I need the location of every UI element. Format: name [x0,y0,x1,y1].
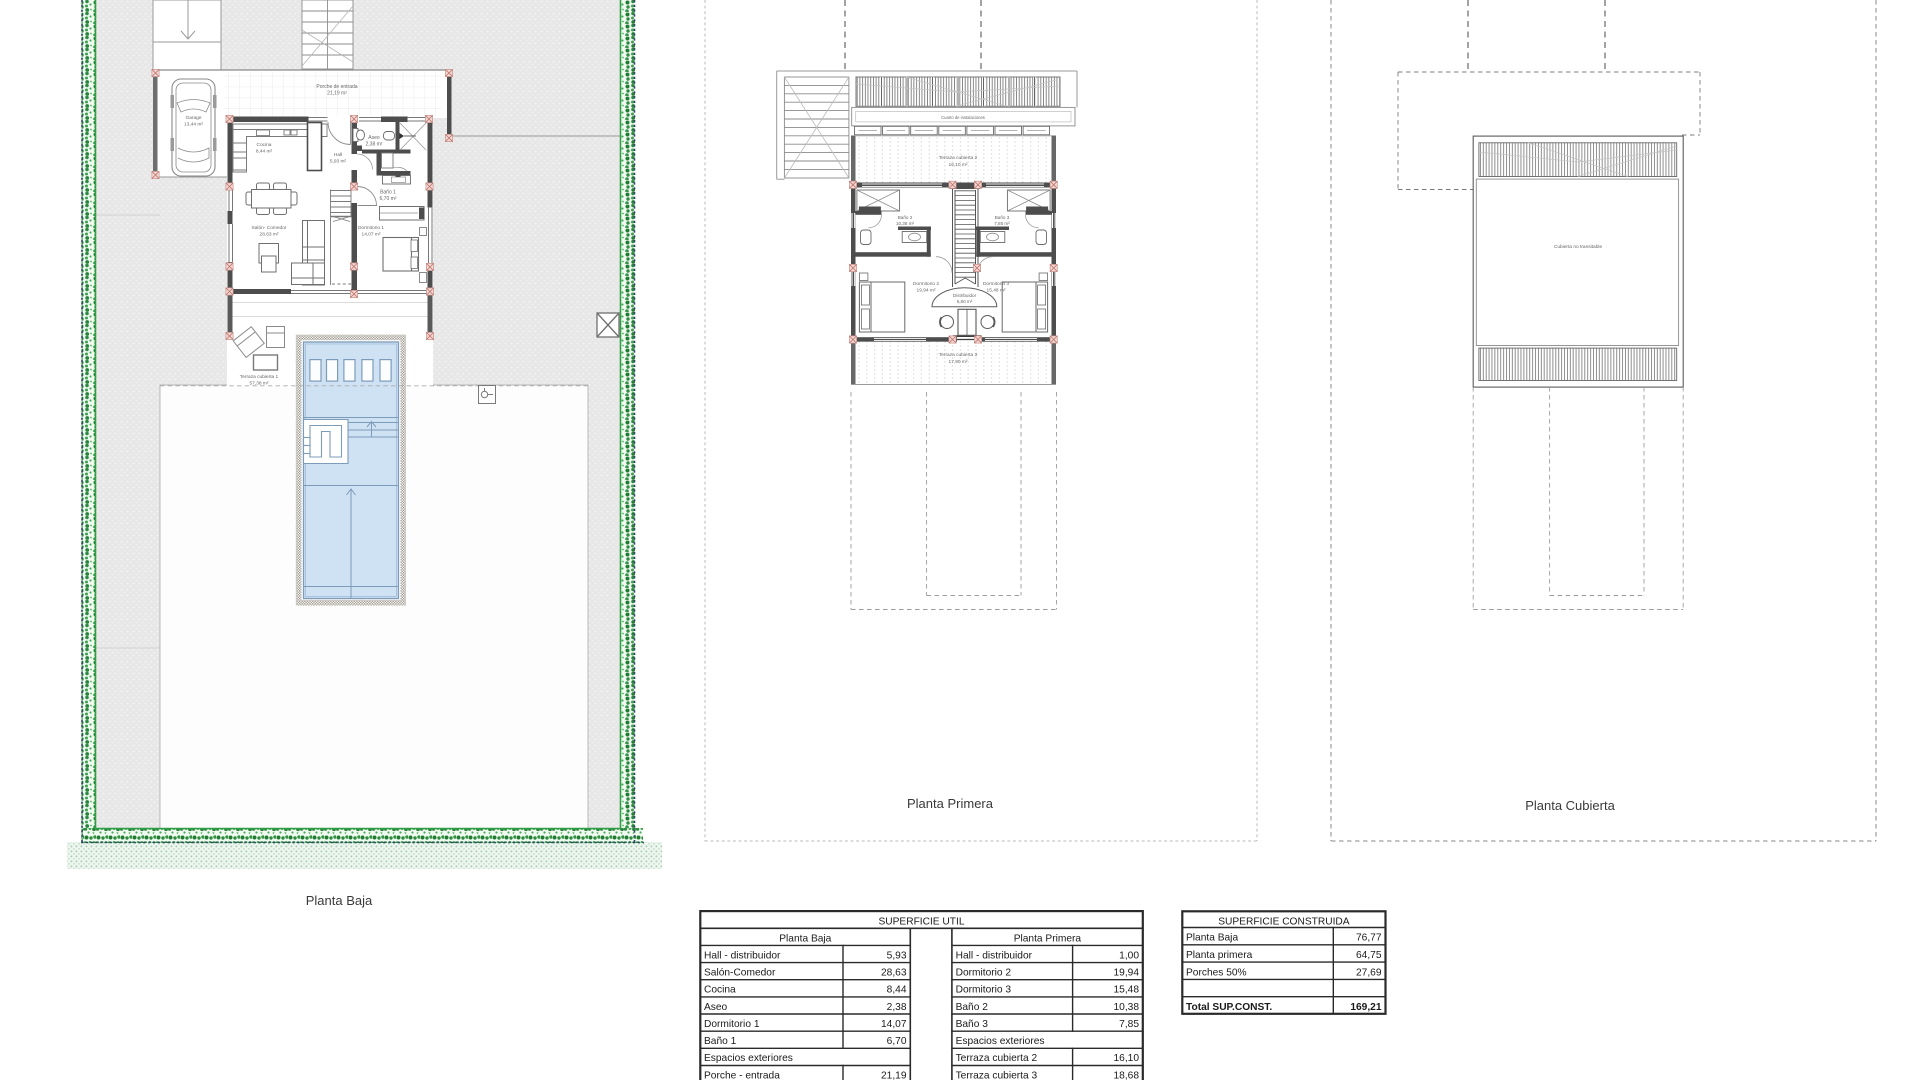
svg-text:2,38: 2,38 [887,1002,907,1013]
svg-text:64,75: 64,75 [1356,950,1382,961]
svg-text:SUPERFICIE CONSTRUIDA: SUPERFICIE CONSTRUIDA [1218,917,1350,928]
svg-text:Terraza cubierta 3: Terraza cubierta 3 [939,352,978,358]
svg-text:Cocina: Cocina [257,142,272,148]
svg-text:Planta Baja: Planta Baja [779,933,831,944]
svg-text:Porche - entrada: Porche - entrada [704,1070,780,1080]
svg-text:Planta Cubierta: Planta Cubierta [1525,798,1615,813]
svg-text:Espacios exteriores: Espacios exteriores [956,1036,1045,1047]
svg-text:Porche de entrada: Porche de entrada [316,84,357,90]
svg-text:Dormitorio 1: Dormitorio 1 [704,1019,760,1030]
svg-text:SUPERFICIE UTIL: SUPERFICIE UTIL [878,916,964,927]
svg-text:7,85: 7,85 [1119,1019,1139,1030]
svg-text:6,70: 6,70 [887,1036,907,1047]
svg-text:Cubierta no transitable: Cubierta no transitable [1554,244,1603,250]
svg-text:6,70 m²: 6,70 m² [380,196,397,202]
svg-text:Terraza cubierta 3: Terraza cubierta 3 [956,1070,1038,1080]
svg-text:Baño 2: Baño 2 [956,1002,989,1013]
svg-text:Dormitorio 2: Dormitorio 2 [956,968,1012,979]
svg-text:19,94: 19,94 [1114,968,1140,979]
svg-text:Baño 3: Baño 3 [995,215,1010,220]
svg-text:Baño 1: Baño 1 [380,190,396,196]
svg-text:28,63: 28,63 [881,968,907,979]
svg-text:21,19: 21,19 [881,1070,907,1080]
svg-text:2,38 m²: 2,38 m² [366,142,383,148]
svg-text:16,10: 16,10 [1114,1053,1140,1064]
svg-text:Total SUP.CONST.: Total SUP.CONST. [1186,1002,1272,1013]
svg-text:14,07: 14,07 [881,1019,907,1030]
svg-text:Baño 2: Baño 2 [898,215,913,220]
svg-text:8,44 m²: 8,44 m² [256,149,273,155]
svg-text:7,85 m²: 7,85 m² [994,221,1010,226]
svg-text:Aseo: Aseo [368,135,380,141]
svg-text:13,44 m²: 13,44 m² [184,122,203,128]
svg-text:14,07 m²: 14,07 m² [362,232,381,238]
svg-text:Planta Primera: Planta Primera [907,796,994,811]
svg-text:15,48: 15,48 [1114,985,1140,996]
svg-text:Distribuidor: Distribuidor [953,293,977,298]
svg-text:Garage: Garage [186,115,202,121]
svg-text:76,77: 76,77 [1356,933,1382,944]
svg-text:Hall - distribuidor: Hall - distribuidor [956,950,1033,961]
svg-text:19,94 m²: 19,94 m² [917,288,936,294]
svg-text:Dormitorio 3: Dormitorio 3 [983,281,1009,287]
svg-text:28,63 m²: 28,63 m² [260,232,279,238]
svg-text:Terraza cubierta 2: Terraza cubierta 2 [956,1053,1038,1064]
svg-text:Hall - distribuidor: Hall - distribuidor [704,950,781,961]
svg-text:8,44: 8,44 [887,985,907,996]
svg-text:Dormitorio 2: Dormitorio 2 [913,281,939,287]
svg-text:Terraza cubierta 2: Terraza cubierta 2 [939,155,978,161]
svg-text:Salón-Comedor: Salón-Comedor [704,968,776,979]
svg-text:Dormitorio 1: Dormitorio 1 [358,225,384,231]
svg-text:Hall: Hall [334,152,342,158]
svg-text:1,00: 1,00 [1119,950,1139,961]
svg-text:Baño 1: Baño 1 [704,1036,737,1047]
svg-text:10,38 m²: 10,38 m² [896,221,915,226]
svg-text:Baño 3: Baño 3 [956,1019,989,1030]
svg-text:Dormitorio 3: Dormitorio 3 [956,985,1012,996]
svg-text:Planta primera: Planta primera [1186,950,1253,961]
svg-text:5,93: 5,93 [887,950,907,961]
svg-text:Planta Baja: Planta Baja [306,893,373,908]
svg-text:16,10 m²: 16,10 m² [949,162,968,168]
svg-text:17,90 m²: 17,90 m² [949,359,968,365]
svg-text:5,93 m²: 5,93 m² [330,159,347,165]
svg-text:21,19 m²: 21,19 m² [327,91,347,97]
svg-text:27,69: 27,69 [1356,967,1382,978]
svg-text:Planta Baja: Planta Baja [1186,933,1238,944]
svg-text:Cocina: Cocina [704,985,736,996]
svg-text:Terraza cubierta 1: Terraza cubierta 1 [240,374,279,380]
svg-text:Salón- Comedor: Salón- Comedor [252,225,287,231]
svg-text:15,48 m²: 15,48 m² [987,288,1006,294]
svg-text:Espacios exteriores: Espacios exteriores [704,1053,793,1064]
svg-text:10,38: 10,38 [1114,1002,1140,1013]
svg-text:18,68: 18,68 [1114,1070,1140,1080]
svg-text:Cuarto de instalaciones: Cuarto de instalaciones [941,115,985,120]
svg-text:Aseo: Aseo [704,1002,728,1013]
svg-text:6,80 m²: 6,80 m² [957,299,973,304]
svg-text:Porches 50%: Porches 50% [1186,967,1247,978]
svg-text:169,21: 169,21 [1350,1002,1381,1013]
svg-text:Planta Primera: Planta Primera [1014,933,1082,944]
